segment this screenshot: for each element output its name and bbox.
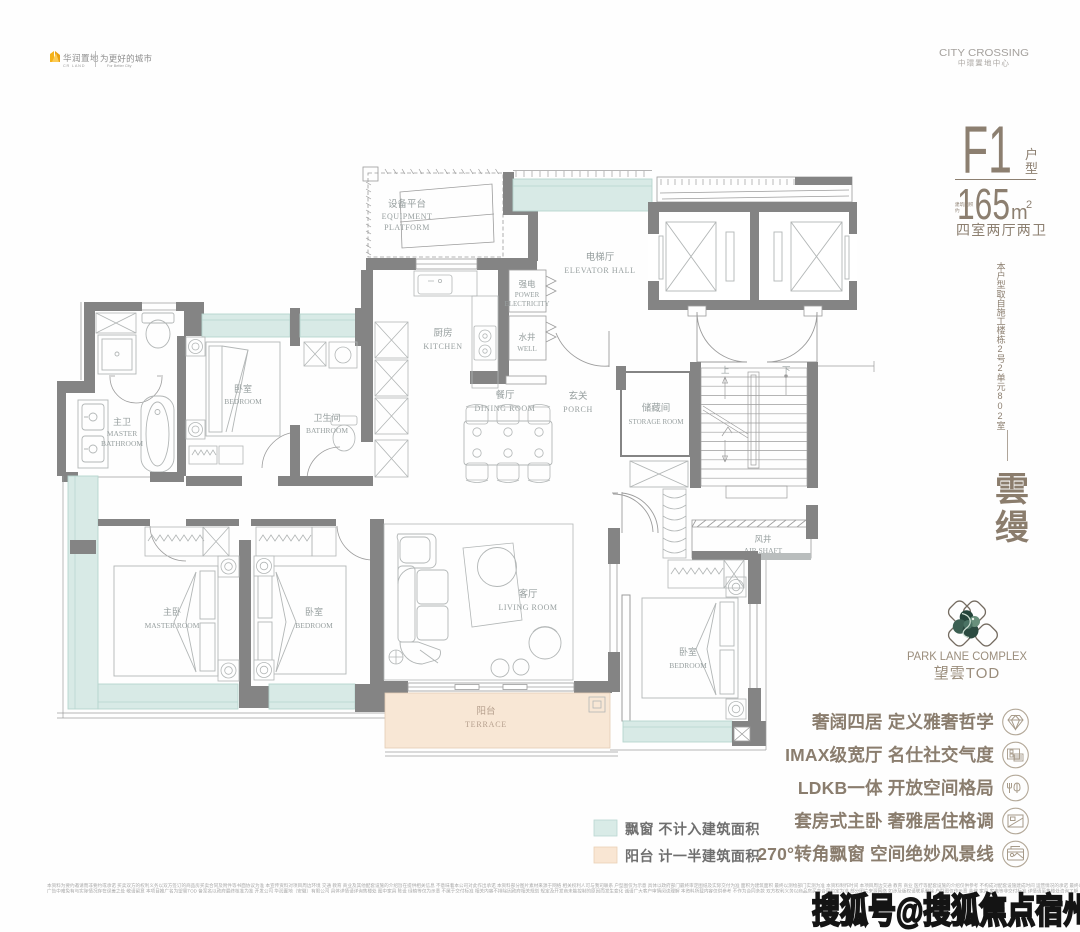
svg-text:搜狐号@搜狐焦点宿州站: 搜狐号@搜狐焦点宿州站 — [812, 891, 1080, 931]
svg-text:主卧: 主卧 — [163, 606, 181, 617]
svg-text:电梯厅: 电梯厅 — [586, 251, 615, 263]
svg-text:BATHROOM: BATHROOM — [306, 426, 348, 435]
svg-text:ELECTRICITY: ELECTRICITY — [504, 300, 549, 308]
svg-text:华润置地: 华润置地 — [63, 53, 99, 63]
svg-text:BEDROOM: BEDROOM — [295, 621, 333, 630]
svg-text:阳台: 阳台 — [476, 705, 495, 717]
svg-text:卫生间: 卫生间 — [313, 412, 340, 423]
svg-text:为更好的城市: 为更好的城市 — [100, 54, 153, 64]
svg-text:PARK LANE COMPLEX: PARK LANE COMPLEX — [907, 649, 1027, 663]
svg-text:LIVING ROOM: LIVING ROOM — [498, 603, 557, 612]
svg-text:本户型取自施工楼栋2号2单元802室: 本户型取自施工楼栋2号2单元802室 — [995, 261, 1006, 430]
svg-text:卧室: 卧室 — [305, 606, 323, 617]
svg-text:TERRACE: TERRACE — [465, 720, 507, 729]
svg-text:BATHROOM: BATHROOM — [101, 439, 143, 448]
svg-text:EQUIPMENT: EQUIPMENT — [382, 212, 433, 221]
svg-text:水井: 水井 — [518, 332, 535, 342]
svg-text:主卫: 主卫 — [113, 416, 131, 427]
svg-text:F1: F1 — [962, 113, 1012, 188]
svg-text:下: 下 — [782, 365, 791, 375]
svg-text:强电: 强电 — [518, 279, 536, 289]
svg-text:上: 上 — [721, 365, 730, 375]
svg-text:KITCHEN: KITCHEN — [423, 342, 462, 351]
svg-text:卧室: 卧室 — [234, 383, 252, 394]
svg-text:四室两厅两卫: 四室两厅两卫 — [956, 222, 1047, 238]
svg-text:PLATFORM: PLATFORM — [384, 223, 430, 232]
svg-text:卧室: 卧室 — [679, 646, 697, 657]
svg-text:阳台 计一半建筑面积: 阳台 计一半建筑面积 — [625, 848, 760, 864]
svg-text:For Better City: For Better City — [107, 64, 132, 68]
svg-text:望雲TOD: 望雲TOD — [934, 665, 1000, 682]
svg-text:ELEVATOR HALL: ELEVATOR HALL — [564, 266, 635, 275]
svg-text:WELL: WELL — [517, 345, 536, 353]
svg-text:2: 2 — [1026, 199, 1032, 211]
svg-text:LDKB一体 开放空间格局: LDKB一体 开放空间格局 — [798, 778, 994, 798]
svg-text:雲: 雲 — [995, 471, 1029, 509]
svg-text:CR LAND: CR LAND — [63, 64, 85, 68]
svg-text:缦: 缦 — [995, 509, 1029, 547]
svg-text:中環置地中心: 中環置地中心 — [958, 58, 1010, 68]
svg-text:餐厅: 餐厅 — [495, 389, 515, 401]
svg-text:IMAX级宽厅 名仕社交气度: IMAX级宽厅 名仕社交气度 — [785, 745, 994, 765]
svg-text:型: 型 — [1025, 161, 1038, 176]
svg-text:BEDROOM: BEDROOM — [224, 397, 262, 406]
svg-text:STORAGE ROOM: STORAGE ROOM — [629, 418, 685, 426]
svg-text:风井: 风井 — [754, 534, 771, 544]
svg-text:MASTER: MASTER — [107, 429, 137, 438]
svg-text:户: 户 — [1025, 147, 1038, 162]
svg-text:PORCH: PORCH — [563, 405, 593, 414]
svg-text:套房式主卧 奢雅居住格调: 套房式主卧 奢雅居住格调 — [793, 811, 994, 831]
svg-text:MASTER ROOM: MASTER ROOM — [145, 621, 200, 630]
svg-text:储藏间: 储藏间 — [642, 402, 671, 414]
svg-text:厨房: 厨房 — [433, 327, 452, 339]
svg-text:飘窗 不计入建筑面积: 飘窗 不计入建筑面积 — [625, 821, 760, 837]
svg-text:设备平台: 设备平台 — [388, 198, 426, 210]
svg-text:POWER: POWER — [515, 291, 540, 299]
svg-text:BEDROOM: BEDROOM — [669, 661, 707, 670]
svg-text:270°转角飘窗 空间绝妙风景线: 270°转角飘窗 空间绝妙风景线 — [757, 844, 994, 864]
svg-text:玄关: 玄关 — [568, 390, 588, 402]
svg-text:CITY CROSSING: CITY CROSSING — [939, 48, 1029, 59]
svg-text:客厅: 客厅 — [518, 588, 538, 600]
svg-text:奢阔四居 定义雅奢哲学: 奢阔四居 定义雅奢哲学 — [811, 712, 994, 732]
